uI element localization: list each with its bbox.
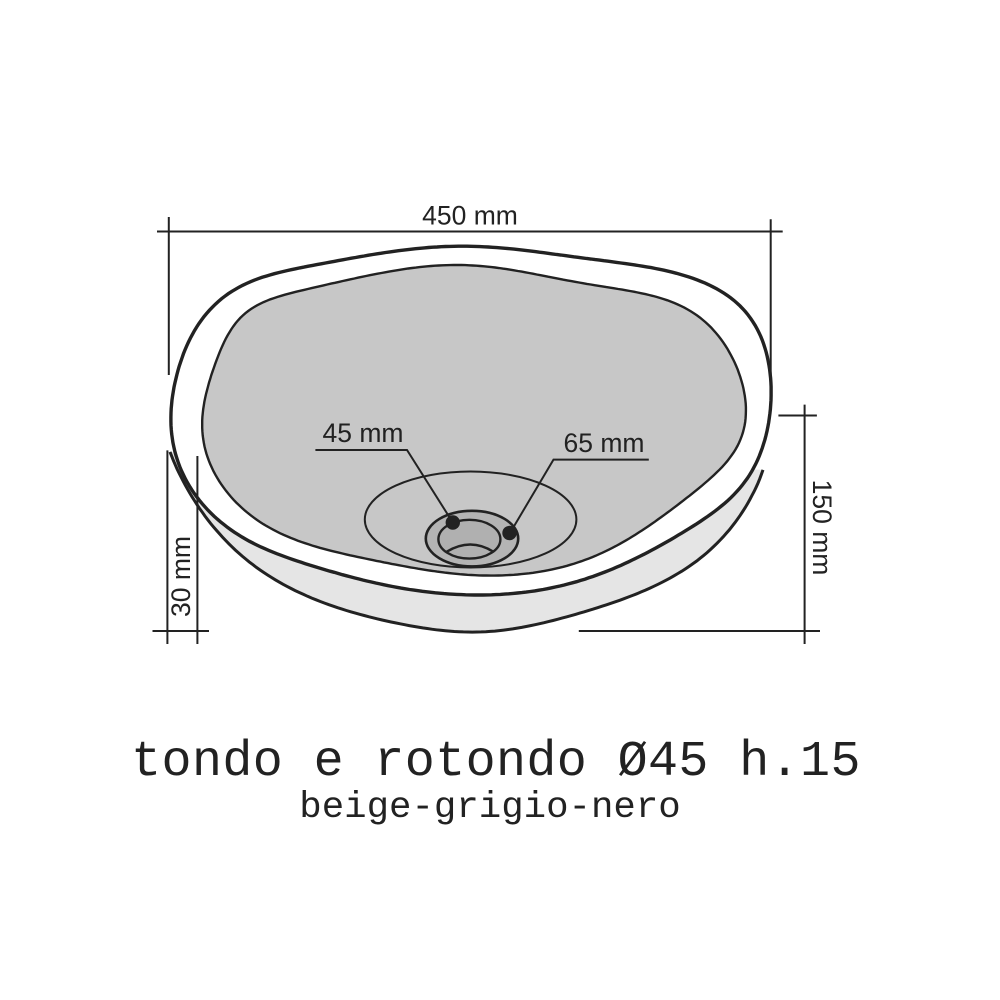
svg-text:450 mm: 450 mm: [422, 201, 518, 231]
svg-text:30 mm: 30 mm: [166, 536, 196, 617]
svg-text:150 mm: 150 mm: [807, 480, 837, 576]
svg-text:65 mm: 65 mm: [564, 428, 645, 458]
svg-text:beige-grigio-nero: beige-grigio-nero: [299, 787, 680, 829]
svg-text:45 mm: 45 mm: [323, 418, 404, 448]
svg-text:tondo e rotondo Ø45 h.15: tondo e rotondo Ø45 h.15: [131, 734, 861, 791]
